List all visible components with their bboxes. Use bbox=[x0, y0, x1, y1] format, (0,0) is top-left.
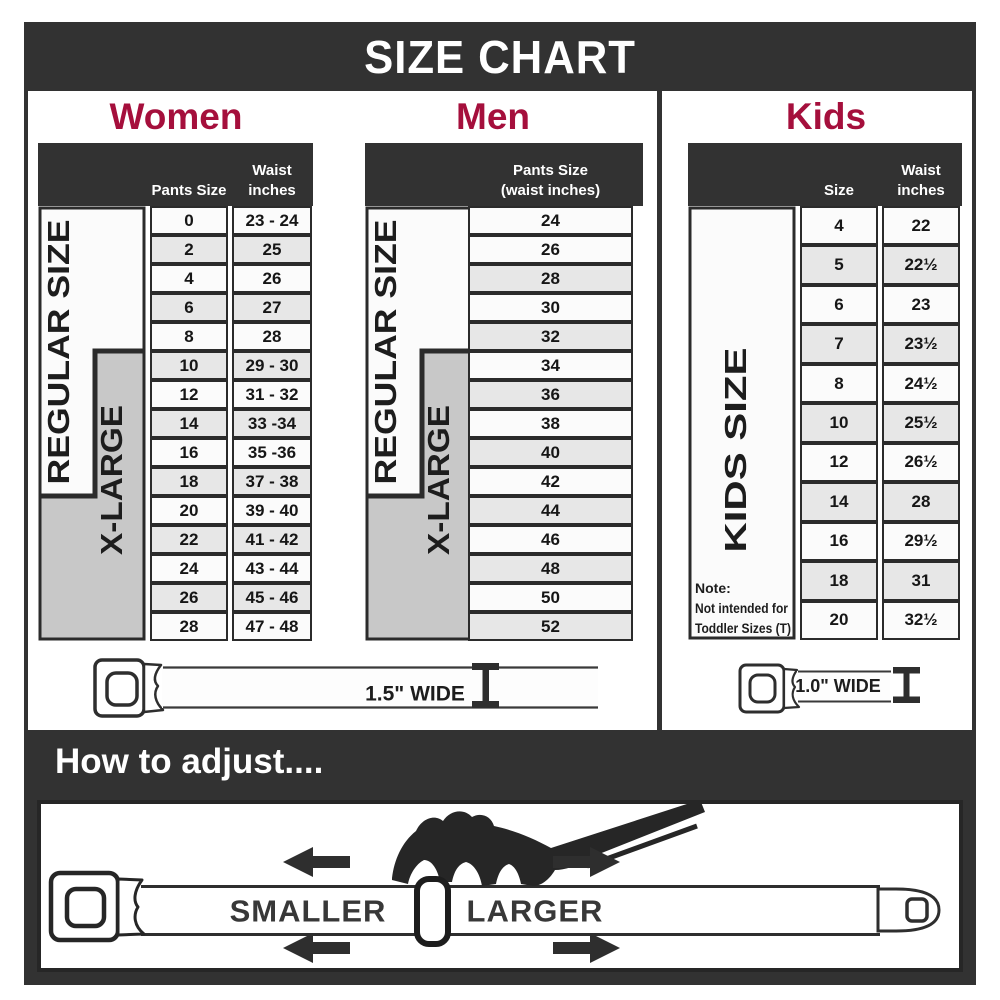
kids-size-cell: 7 bbox=[800, 324, 878, 363]
belt-tip-hole bbox=[907, 899, 927, 921]
kids-waist-cell: 23 bbox=[882, 285, 960, 324]
women-size-cell: 26 bbox=[150, 583, 228, 612]
kids-waist-cell: 22 bbox=[882, 206, 960, 245]
women-waist-cell: 45 - 46 bbox=[232, 583, 312, 612]
women-waist-cell: 23 - 24 bbox=[232, 206, 312, 235]
men-size-cell: 34 bbox=[468, 351, 633, 380]
belt-slider bbox=[417, 879, 448, 944]
women-table-header: Pants Size Waist inches bbox=[38, 143, 313, 206]
kids-size-table: Size Waist inches KIDS SIZE Note: Not in… bbox=[688, 143, 962, 640]
men-size-cell: 44 bbox=[468, 496, 633, 525]
women-waist-cell: 27 bbox=[232, 293, 312, 322]
women-size-cell: 8 bbox=[150, 322, 228, 351]
men-size-cell: 30 bbox=[468, 293, 633, 322]
how-to-adjust-section: How to adjust.... bbox=[24, 730, 976, 985]
kids-waist-cell: 28 bbox=[882, 482, 960, 521]
adult-belt-width-label: 1.5" WIDE bbox=[365, 683, 465, 706]
men-table-header: Pants Size (waist inches) bbox=[365, 143, 643, 206]
men-size-cell: 24 bbox=[468, 206, 633, 235]
women-size-range-labels: REGULAR SIZE X-LARGE bbox=[38, 206, 148, 641]
men-size-cell: 52 bbox=[468, 612, 633, 641]
men-size-cell: 46 bbox=[468, 525, 633, 554]
women-waist-cell: 33 -34 bbox=[232, 409, 312, 438]
belt-tip bbox=[878, 889, 939, 931]
kids-note-line3: Toddler Sizes (T) bbox=[695, 620, 791, 636]
women-size-table: Pants Size Waist inches REGULAR SIZE X-L… bbox=[38, 143, 313, 641]
kids-size-cell: 10 bbox=[800, 403, 878, 442]
men-size-cell: 48 bbox=[468, 554, 633, 583]
women-waist-cell: 35 -36 bbox=[232, 438, 312, 467]
kids-note-line2: Not intended for bbox=[695, 600, 788, 616]
kids-size-cell: 6 bbox=[800, 285, 878, 324]
hand-icon bbox=[392, 804, 705, 886]
frame-border-left bbox=[24, 91, 28, 730]
page-title: SIZE CHART bbox=[364, 30, 636, 84]
women-size-cell: 22 bbox=[150, 525, 228, 554]
women-col1-header: Pants Size bbox=[150, 181, 228, 201]
women-waist-cell: 29 - 30 bbox=[232, 351, 312, 380]
kids-waist-cell: 24½ bbox=[882, 364, 960, 403]
women-regular-label: REGULAR SIZE bbox=[41, 220, 76, 485]
women-size-cell: 28 bbox=[150, 612, 228, 641]
women-waist-cell: 39 - 40 bbox=[232, 496, 312, 525]
belt-buckle-icon bbox=[51, 873, 144, 940]
women-waist-cell: 26 bbox=[232, 264, 312, 293]
men-col: 242628303234363840424446485052 bbox=[468, 206, 633, 641]
kids-size-cell: 20 bbox=[800, 601, 878, 640]
men-size-cell: 42 bbox=[468, 467, 633, 496]
size-chart-page: SIZE CHART Women Men Kids Pants Size Wai… bbox=[0, 0, 1000, 1000]
kids-col2-header: Waist inches bbox=[882, 161, 960, 200]
kids-belt-graphic: 1.0" WIDE bbox=[735, 655, 975, 715]
women-size-cell: 10 bbox=[150, 351, 228, 380]
adjust-illustration: SMALLER LARGER bbox=[41, 804, 959, 968]
women-waist-cell: 31 - 32 bbox=[232, 380, 312, 409]
how-to-adjust-heading: How to adjust.... bbox=[55, 742, 323, 782]
arrow-left-icon bbox=[283, 847, 350, 877]
women-waist-col: 23 - 242526272829 - 3031 - 3233 -3435 -3… bbox=[232, 206, 312, 641]
women-size-cell: 2 bbox=[150, 235, 228, 264]
belt-buckle-icon bbox=[95, 660, 163, 716]
kids-waist-cell: 25½ bbox=[882, 403, 960, 442]
kids-waist-cell: 29½ bbox=[882, 522, 960, 561]
arrow-right-icon bbox=[553, 933, 620, 963]
kids-belt-width-label: 1.0" WIDE bbox=[795, 676, 881, 696]
kids-size-cell: 12 bbox=[800, 443, 878, 482]
section-divider bbox=[657, 91, 662, 730]
kids-note-line1: Note: bbox=[695, 580, 731, 596]
kids-size-cell: 14 bbox=[800, 482, 878, 521]
women-col2-header: Waist inches bbox=[232, 161, 312, 200]
women-waist-cell: 25 bbox=[232, 235, 312, 264]
women-size-cell: 4 bbox=[150, 264, 228, 293]
kids-size-cell: 8 bbox=[800, 364, 878, 403]
men-size-cell: 38 bbox=[468, 409, 633, 438]
men-size-cell: 26 bbox=[468, 235, 633, 264]
men-size-cell: 50 bbox=[468, 583, 633, 612]
kids-size-col: 45678101214161820 bbox=[800, 206, 878, 640]
kids-waist-cell: 32½ bbox=[882, 601, 960, 640]
men-heading: Men bbox=[343, 96, 643, 138]
kids-waist-cell: 26½ bbox=[882, 443, 960, 482]
women-waist-cell: 43 - 44 bbox=[232, 554, 312, 583]
women-size-cell: 16 bbox=[150, 438, 228, 467]
men-size-table: Pants Size (waist inches) REGULAR SIZE X… bbox=[365, 143, 643, 641]
men-size-cell: 36 bbox=[468, 380, 633, 409]
women-size-cell: 18 bbox=[150, 467, 228, 496]
women-heading: Women bbox=[26, 96, 326, 138]
men-size-cell: 40 bbox=[468, 438, 633, 467]
kids-size-cell: 5 bbox=[800, 245, 878, 284]
kids-waist-cell: 23½ bbox=[882, 324, 960, 363]
smaller-label: SMALLER bbox=[230, 894, 387, 929]
kids-waist-cell: 22½ bbox=[882, 245, 960, 284]
kids-size-label: KIDS SIZE bbox=[718, 348, 753, 553]
kids-size-label-box: KIDS SIZE Note: Not intended for Toddler… bbox=[688, 206, 798, 640]
women-size-cell: 12 bbox=[150, 380, 228, 409]
women-waist-cell: 41 - 42 bbox=[232, 525, 312, 554]
men-xlarge-label: X-LARGE bbox=[421, 405, 456, 555]
women-size-cell: 6 bbox=[150, 293, 228, 322]
men-col-header: Pants Size (waist inches) bbox=[468, 161, 633, 200]
adult-belt-graphic: 1.5" WIDE bbox=[88, 652, 608, 722]
men-size-cell: 28 bbox=[468, 264, 633, 293]
adjust-illustration-panel: SMALLER LARGER bbox=[37, 800, 963, 972]
arrow-left-icon bbox=[283, 933, 350, 963]
kids-col1-header: Size bbox=[800, 181, 878, 201]
women-waist-cell: 37 - 38 bbox=[232, 467, 312, 496]
men-size-range-labels: REGULAR SIZE X-LARGE bbox=[365, 206, 475, 641]
kids-table-header: Size Waist inches bbox=[688, 143, 962, 206]
kids-size-cell: 16 bbox=[800, 522, 878, 561]
women-waist-cell: 28 bbox=[232, 322, 312, 351]
women-size-cell: 0 bbox=[150, 206, 228, 235]
men-regular-label: REGULAR SIZE bbox=[368, 220, 403, 485]
title-bar: SIZE CHART bbox=[24, 22, 976, 91]
men-size-cell: 32 bbox=[468, 322, 633, 351]
women-xlarge-label: X-LARGE bbox=[94, 405, 129, 555]
kids-size-cell: 18 bbox=[800, 561, 878, 600]
belt-buckle-icon bbox=[740, 665, 799, 712]
women-size-cell: 20 bbox=[150, 496, 228, 525]
kids-waist-cell: 31 bbox=[882, 561, 960, 600]
women-size-col: 0246810121416182022242628 bbox=[150, 206, 228, 641]
women-waist-cell: 47 - 48 bbox=[232, 612, 312, 641]
larger-label: LARGER bbox=[467, 894, 604, 929]
width-marker-icon bbox=[893, 667, 920, 703]
kids-size-cell: 4 bbox=[800, 206, 878, 245]
frame-border-right bbox=[972, 91, 976, 730]
kids-waist-col: 2222½2323½24½25½26½2829½3132½ bbox=[882, 206, 960, 640]
kids-heading: Kids bbox=[676, 96, 976, 138]
women-size-cell: 14 bbox=[150, 409, 228, 438]
women-size-cell: 24 bbox=[150, 554, 228, 583]
